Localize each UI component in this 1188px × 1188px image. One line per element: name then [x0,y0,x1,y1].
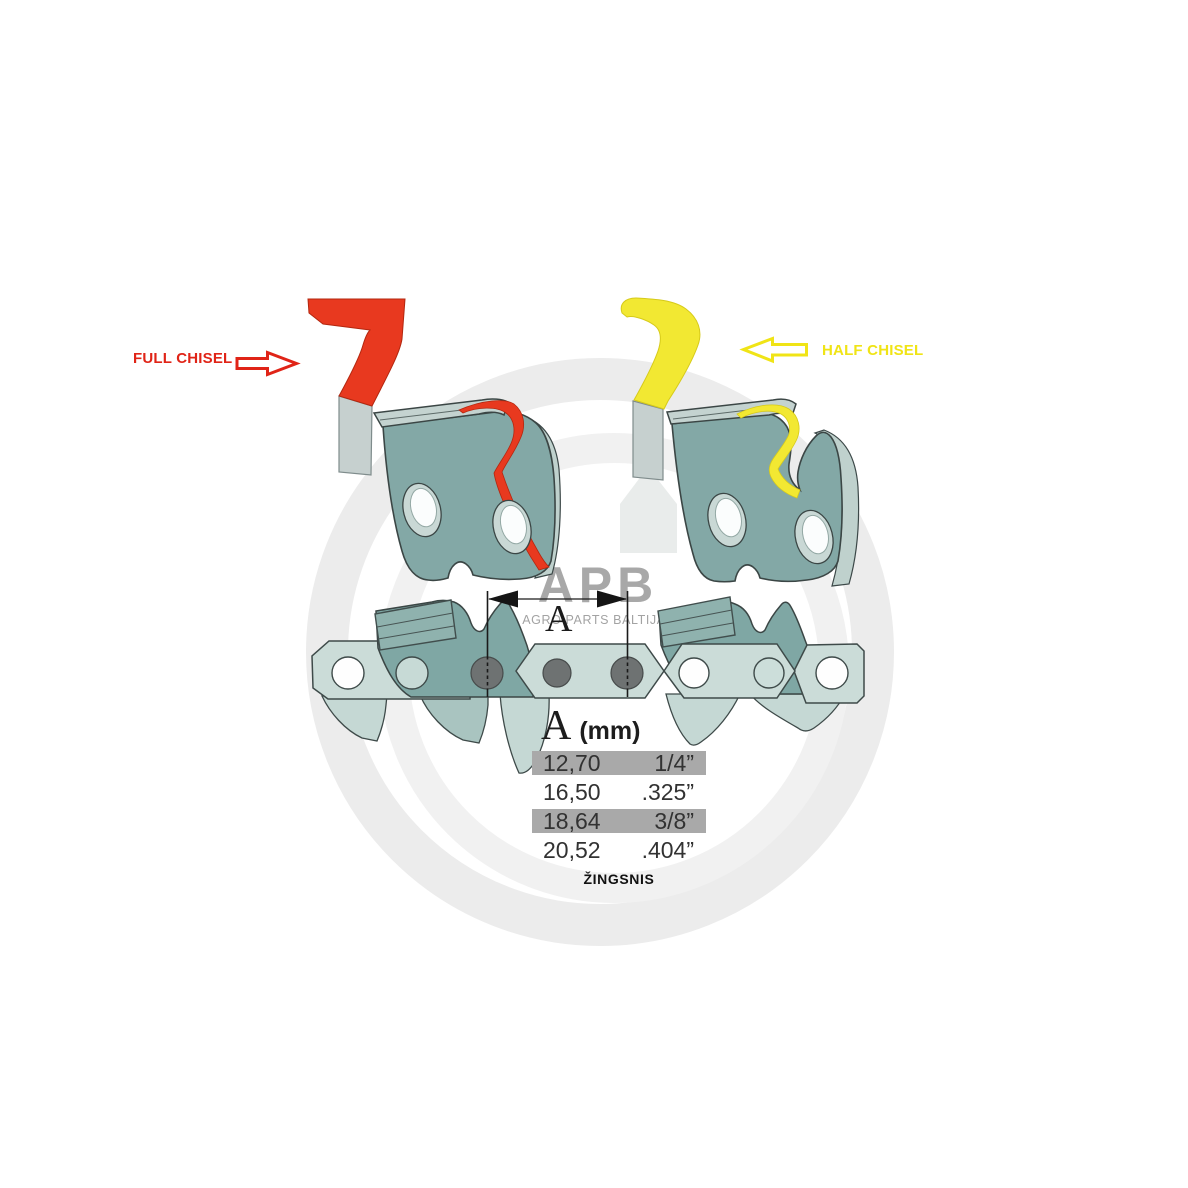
pitch-inch-value: .404” [642,837,694,864]
pitch-inch-value: 1/4” [654,750,694,777]
full-chisel-cutter-illustration [374,399,560,580]
half-chisel-arrow-icon [744,339,807,362]
chainsaw-chain-diagram: APB AGRO PARTS BALTIJA [0,0,1188,1188]
half-chisel-label: HALF CHISEL [822,343,923,358]
pitch-mm-value: 18,64 [543,808,601,835]
table-row: 16,50 .325” [532,780,706,804]
pitch-inch-value: 3/8” [654,808,694,835]
pitch-table: A (mm) 12,70 1/4” 16,50 .325” 18,64 3/8”… [532,705,706,887]
table-row: 20,52 .404” [532,838,706,862]
cutter-hole [396,657,428,689]
pitch-dimension-label: A [545,600,572,638]
pitch-mm-value: 16,50 [543,779,601,806]
table-row: 18,64 3/8” [532,809,706,833]
drive-link-tooth [420,694,488,743]
pitch-table-rows: 12,70 1/4” 16,50 .325” 18,64 3/8” 20,52 … [532,751,706,862]
pitch-inch-value: .325” [642,779,694,806]
watermark-shape [620,467,677,553]
full-chisel-arrow-icon [237,353,297,375]
pitch-unit: (mm) [579,717,640,746]
rivet [543,659,571,687]
half-chisel-cutter-illustration [667,399,859,586]
half-chisel-shank [633,401,663,480]
product-diagram-canvas: APB AGRO PARTS BALTIJA [0,0,1188,1188]
full-chisel-shank [339,396,372,475]
full-chisel-label: FULL CHISEL [133,351,232,366]
pitch-table-header: A (mm) [541,705,706,747]
full-chisel-cross-section [308,299,405,406]
strap-hole [679,658,709,688]
strap-hole [816,657,848,689]
table-row: 12,70 1/4” [532,751,706,775]
strap-hole [332,657,364,689]
pitch-mm-value: 12,70 [543,750,601,777]
watermark-subtitle-text: AGRO PARTS BALTIJA [522,613,666,627]
pitch-mm-value: 20,52 [543,837,601,864]
cutter-hole [754,658,784,688]
pitch-footer-label: ŽINGSNIS [532,871,706,887]
pitch-symbol: A [541,705,571,747]
